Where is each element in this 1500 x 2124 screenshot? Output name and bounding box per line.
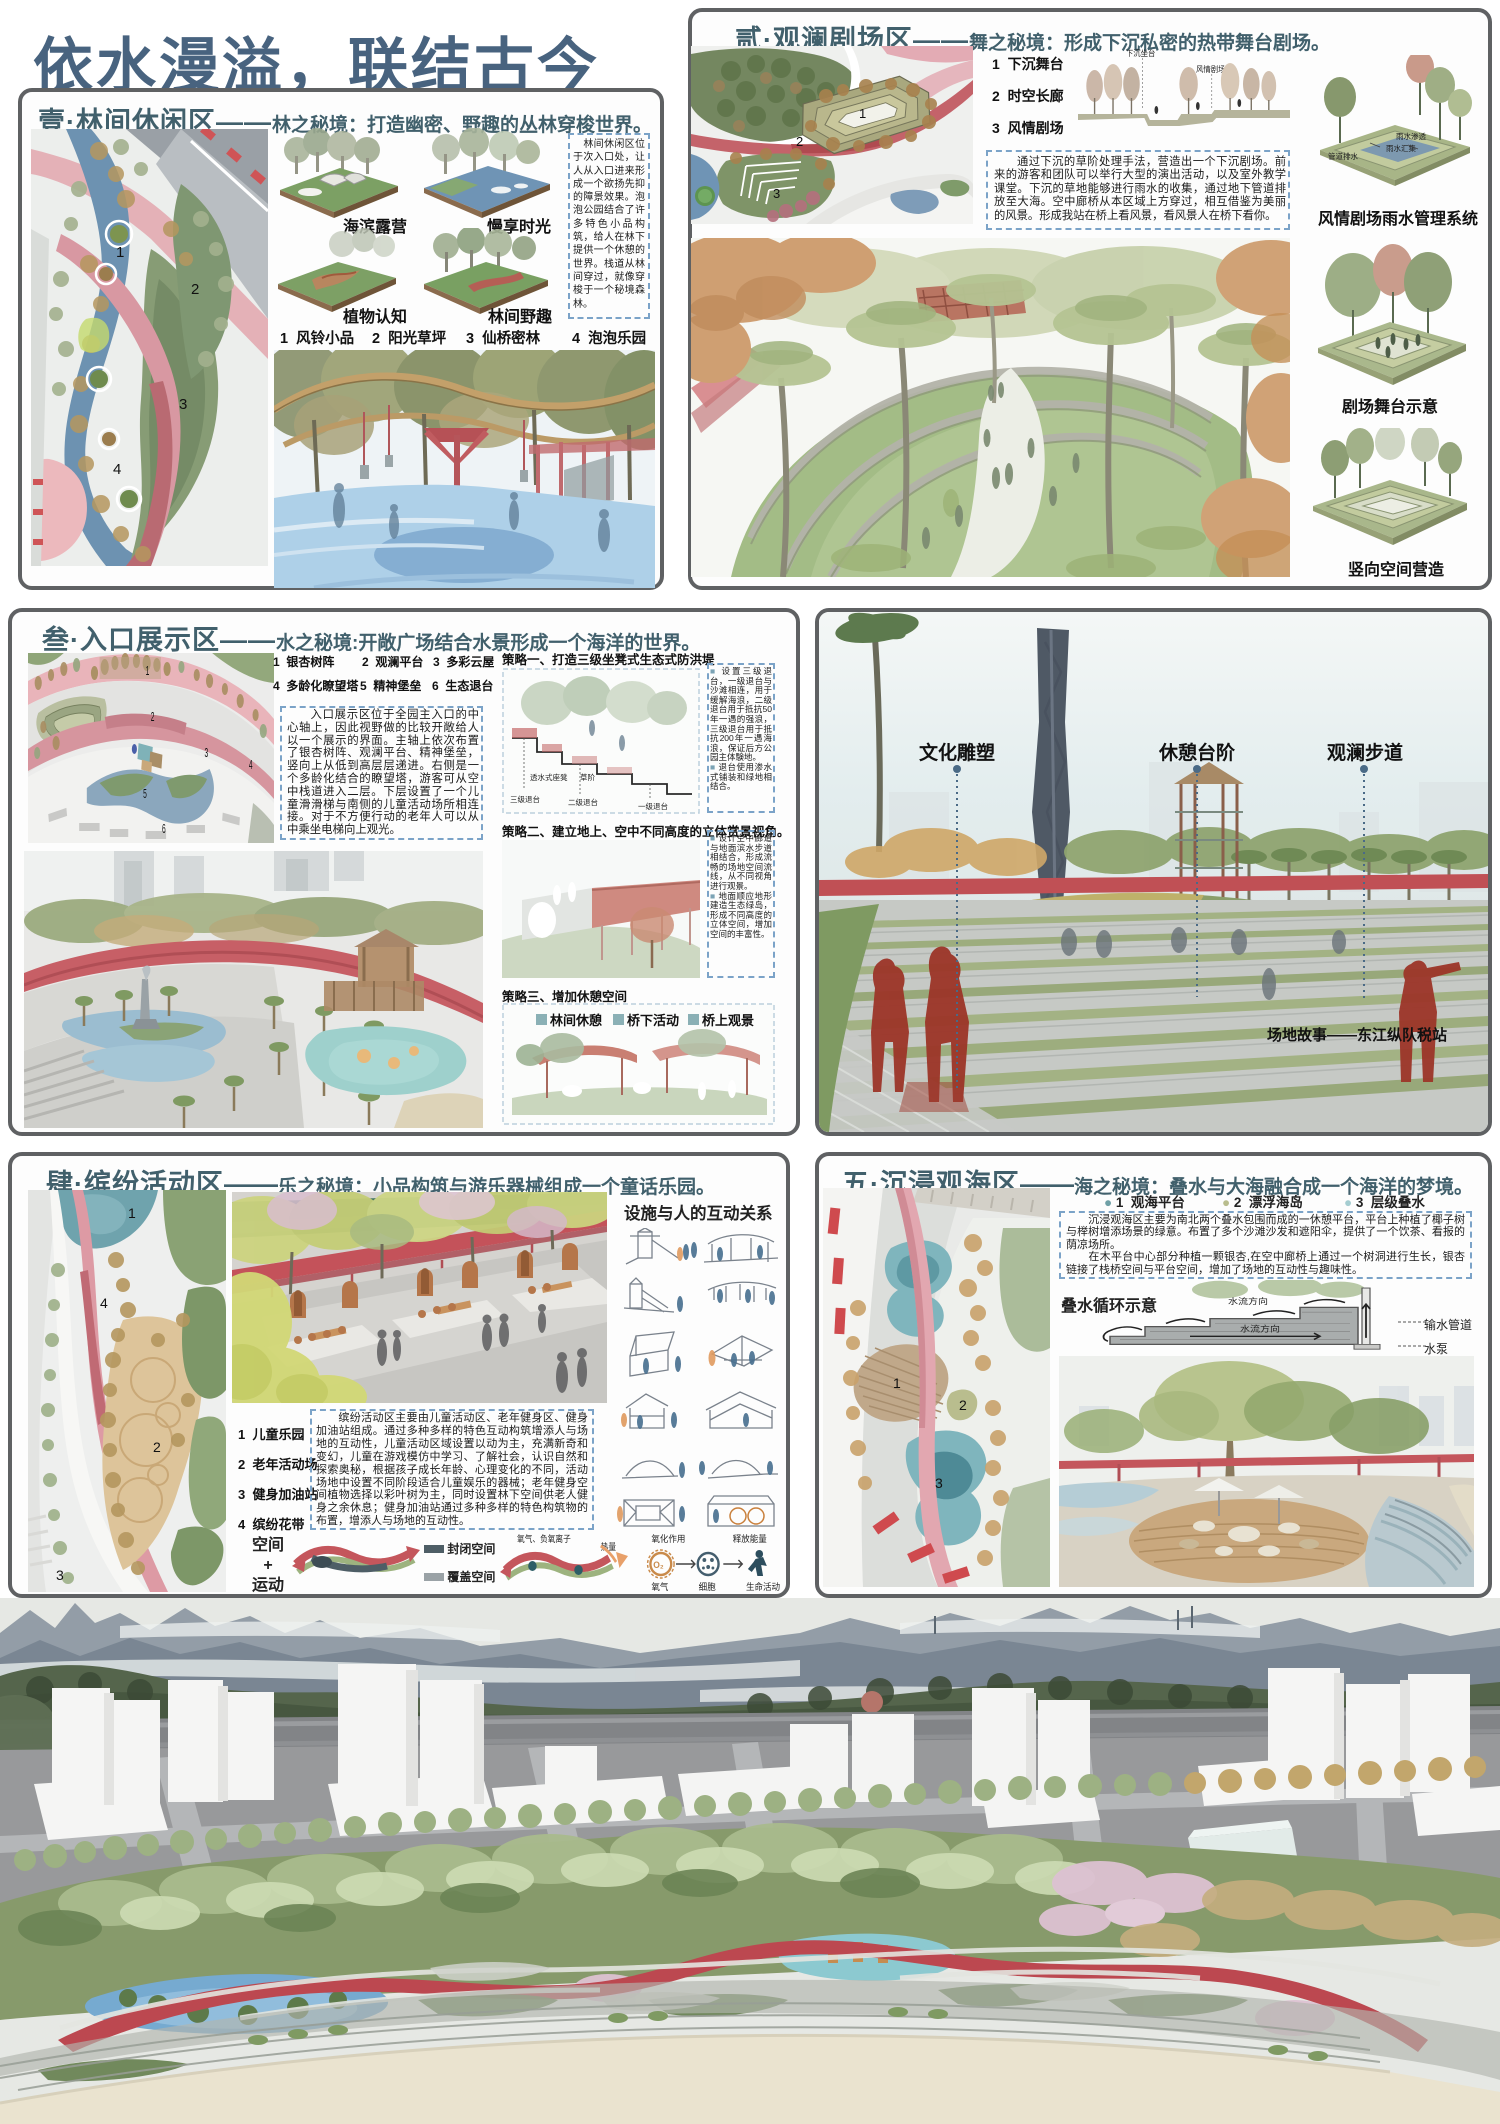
svg-text:释放能量: 释放能量	[733, 1533, 767, 1544]
svg-text:桥上观景: 桥上观景	[702, 1013, 754, 1028]
svg-text:3: 3	[56, 1567, 64, 1583]
svg-text:氧气: 氧气	[651, 1581, 668, 1592]
svg-text:3: 3	[179, 396, 187, 413]
svg-text:管道排水: 管道排水	[1328, 151, 1358, 161]
svg-text:雨水汇集: 雨水汇集	[1386, 143, 1416, 153]
svg-text:雨水渗透: 雨水渗透	[1396, 131, 1426, 141]
svg-text:水流方向: 水流方向	[1240, 1324, 1280, 1334]
svg-text:一级退台: 一级退台	[638, 801, 668, 811]
svg-text:桥下活动: 桥下活动	[627, 1013, 679, 1028]
svg-text:2: 2	[153, 1439, 161, 1455]
svg-text:4: 4	[100, 1295, 108, 1311]
svg-text:4: 4	[249, 759, 253, 773]
svg-text:5: 5	[143, 788, 147, 802]
svg-text:氧气、负氧离子: 氧气、负氧离子	[517, 1533, 571, 1544]
svg-text:2: 2	[796, 134, 803, 149]
svg-text:下沉坐台: 下沉坐台	[1126, 48, 1156, 58]
svg-text:O₂: O₂	[653, 1560, 664, 1570]
svg-text:1: 1	[859, 106, 866, 121]
svg-text:细胞: 细胞	[699, 1581, 716, 1592]
svg-text:1: 1	[893, 1375, 901, 1391]
svg-text:2: 2	[151, 711, 155, 725]
svg-text:4: 4	[113, 461, 121, 478]
svg-text:1: 1	[128, 1205, 136, 1221]
svg-text:1: 1	[146, 665, 150, 679]
svg-text:二级退台: 二级退台	[568, 797, 598, 807]
svg-text:3: 3	[773, 186, 780, 201]
svg-text:三级退台: 三级退台	[510, 794, 540, 804]
svg-text:6: 6	[162, 823, 166, 837]
svg-text:水流方向: 水流方向	[1228, 1296, 1268, 1306]
svg-text:透水式座凳: 透水式座凳	[530, 772, 568, 782]
svg-text:草阶: 草阶	[580, 772, 595, 782]
svg-text:3: 3	[204, 747, 208, 761]
svg-text:3: 3	[935, 1475, 943, 1491]
svg-text:2: 2	[191, 281, 199, 298]
svg-text:生命活动: 生命活动	[746, 1581, 780, 1592]
svg-text:风情剧场: 风情剧场	[1196, 64, 1226, 74]
svg-text:林间休憩: 林间休憩	[550, 1013, 602, 1028]
svg-text:2: 2	[959, 1397, 967, 1413]
svg-text:氧化作用: 氧化作用	[651, 1533, 685, 1544]
svg-text:1: 1	[116, 244, 124, 261]
